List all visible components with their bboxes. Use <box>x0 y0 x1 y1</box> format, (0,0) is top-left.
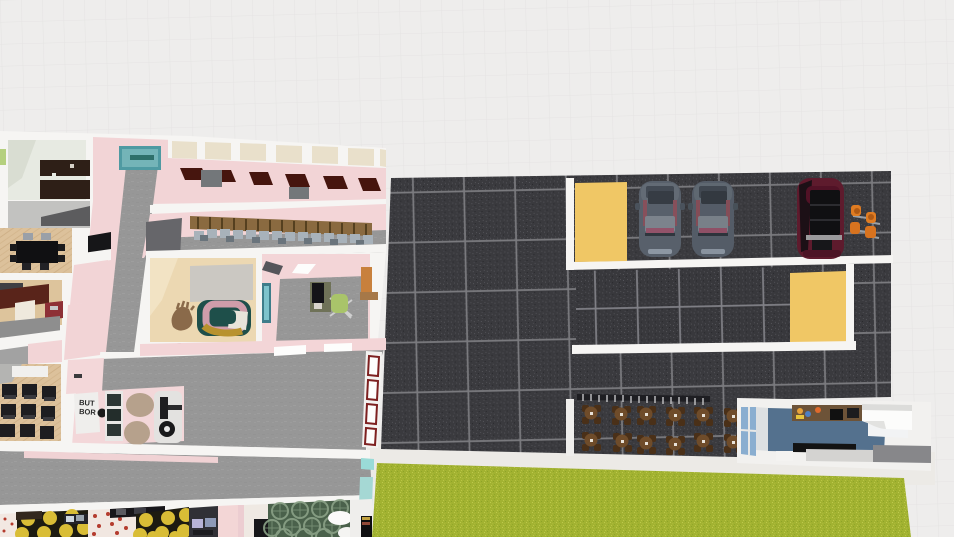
svg-text:BOR: BOR <box>79 407 97 417</box>
